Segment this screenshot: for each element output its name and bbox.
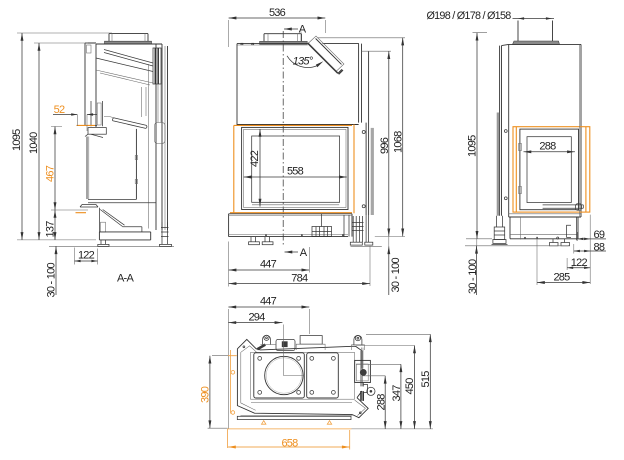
svg-text:137: 137 — [45, 221, 57, 238]
svg-text:52: 52 — [54, 104, 65, 116]
svg-text:30 - 100: 30 - 100 — [46, 263, 58, 298]
svg-text:A-A: A-A — [117, 273, 135, 285]
svg-text:450: 450 — [404, 378, 416, 395]
svg-text:447: 447 — [260, 259, 277, 271]
svg-text:122: 122 — [571, 257, 588, 269]
svg-text:30 - 100: 30 - 100 — [467, 259, 479, 294]
svg-text:558: 558 — [287, 166, 304, 178]
svg-text:1068: 1068 — [393, 131, 405, 153]
svg-text:1095: 1095 — [11, 129, 23, 151]
svg-text:88: 88 — [594, 242, 605, 254]
svg-text:422: 422 — [249, 150, 261, 167]
svg-text:294: 294 — [248, 311, 265, 323]
svg-text:347: 347 — [391, 385, 403, 402]
svg-text:1040: 1040 — [28, 132, 40, 154]
svg-text:447: 447 — [260, 296, 277, 308]
svg-text:515: 515 — [420, 371, 432, 388]
svg-text:658: 658 — [281, 437, 298, 449]
svg-text:996: 996 — [379, 137, 391, 154]
svg-text:A: A — [300, 247, 308, 259]
svg-text:285: 285 — [553, 271, 570, 283]
svg-text:135°: 135° — [293, 56, 314, 68]
svg-text:Ø198 / Ø178 / Ø158: Ø198 / Ø178 / Ø158 — [427, 10, 512, 22]
svg-text:288: 288 — [376, 394, 388, 411]
svg-text:1095: 1095 — [466, 135, 478, 157]
svg-text:A: A — [299, 24, 307, 36]
svg-text:784: 784 — [291, 272, 308, 284]
svg-text:536: 536 — [269, 7, 286, 19]
svg-text:467: 467 — [45, 165, 57, 182]
svg-text:30 - 100: 30 - 100 — [390, 258, 402, 293]
svg-text:288: 288 — [539, 141, 556, 153]
svg-text:390: 390 — [200, 386, 212, 403]
svg-text:122: 122 — [78, 250, 95, 262]
svg-text:69: 69 — [594, 229, 605, 241]
